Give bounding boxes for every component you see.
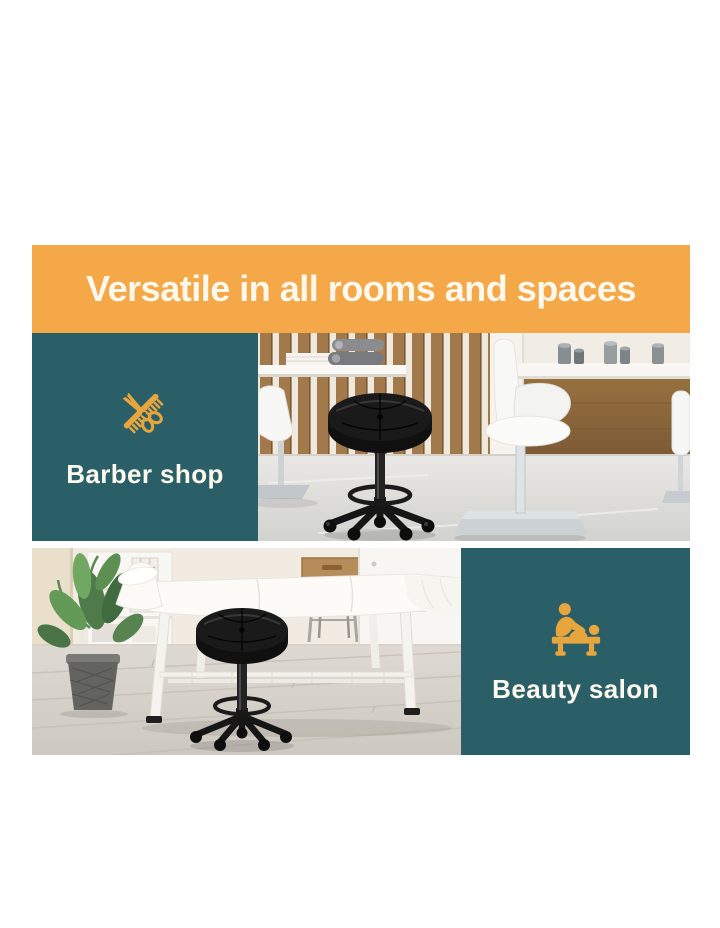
table-foot-right: [586, 651, 596, 655]
table-top: [551, 637, 599, 644]
barber-shop-label: Barber shop: [66, 459, 224, 490]
client-head: [588, 625, 598, 635]
barber-shop-section: Barber shop: [32, 333, 690, 541]
scissors-comb-icon: [115, 385, 175, 445]
barber-shop-panel: Barber shop: [32, 333, 258, 541]
table-foot-left: [555, 651, 565, 655]
banner-title: Versatile in all rooms and spaces: [86, 268, 636, 310]
beauty-salon-section: Beauty salon: [32, 548, 690, 755]
beauty-salon-photo: [32, 548, 461, 755]
scissors-glyph: [117, 387, 165, 435]
barber-shop-photo: [258, 333, 690, 541]
product-marketing-image: Versatile in all rooms and spaces: [0, 0, 720, 928]
title-banner: Versatile in all rooms and spaces: [32, 245, 690, 333]
massage-table-icon: [543, 598, 609, 660]
masseuse-head: [558, 603, 570, 615]
beauty-salon-panel: Beauty salon: [461, 548, 690, 755]
beauty-salon-label: Beauty salon: [492, 674, 659, 705]
